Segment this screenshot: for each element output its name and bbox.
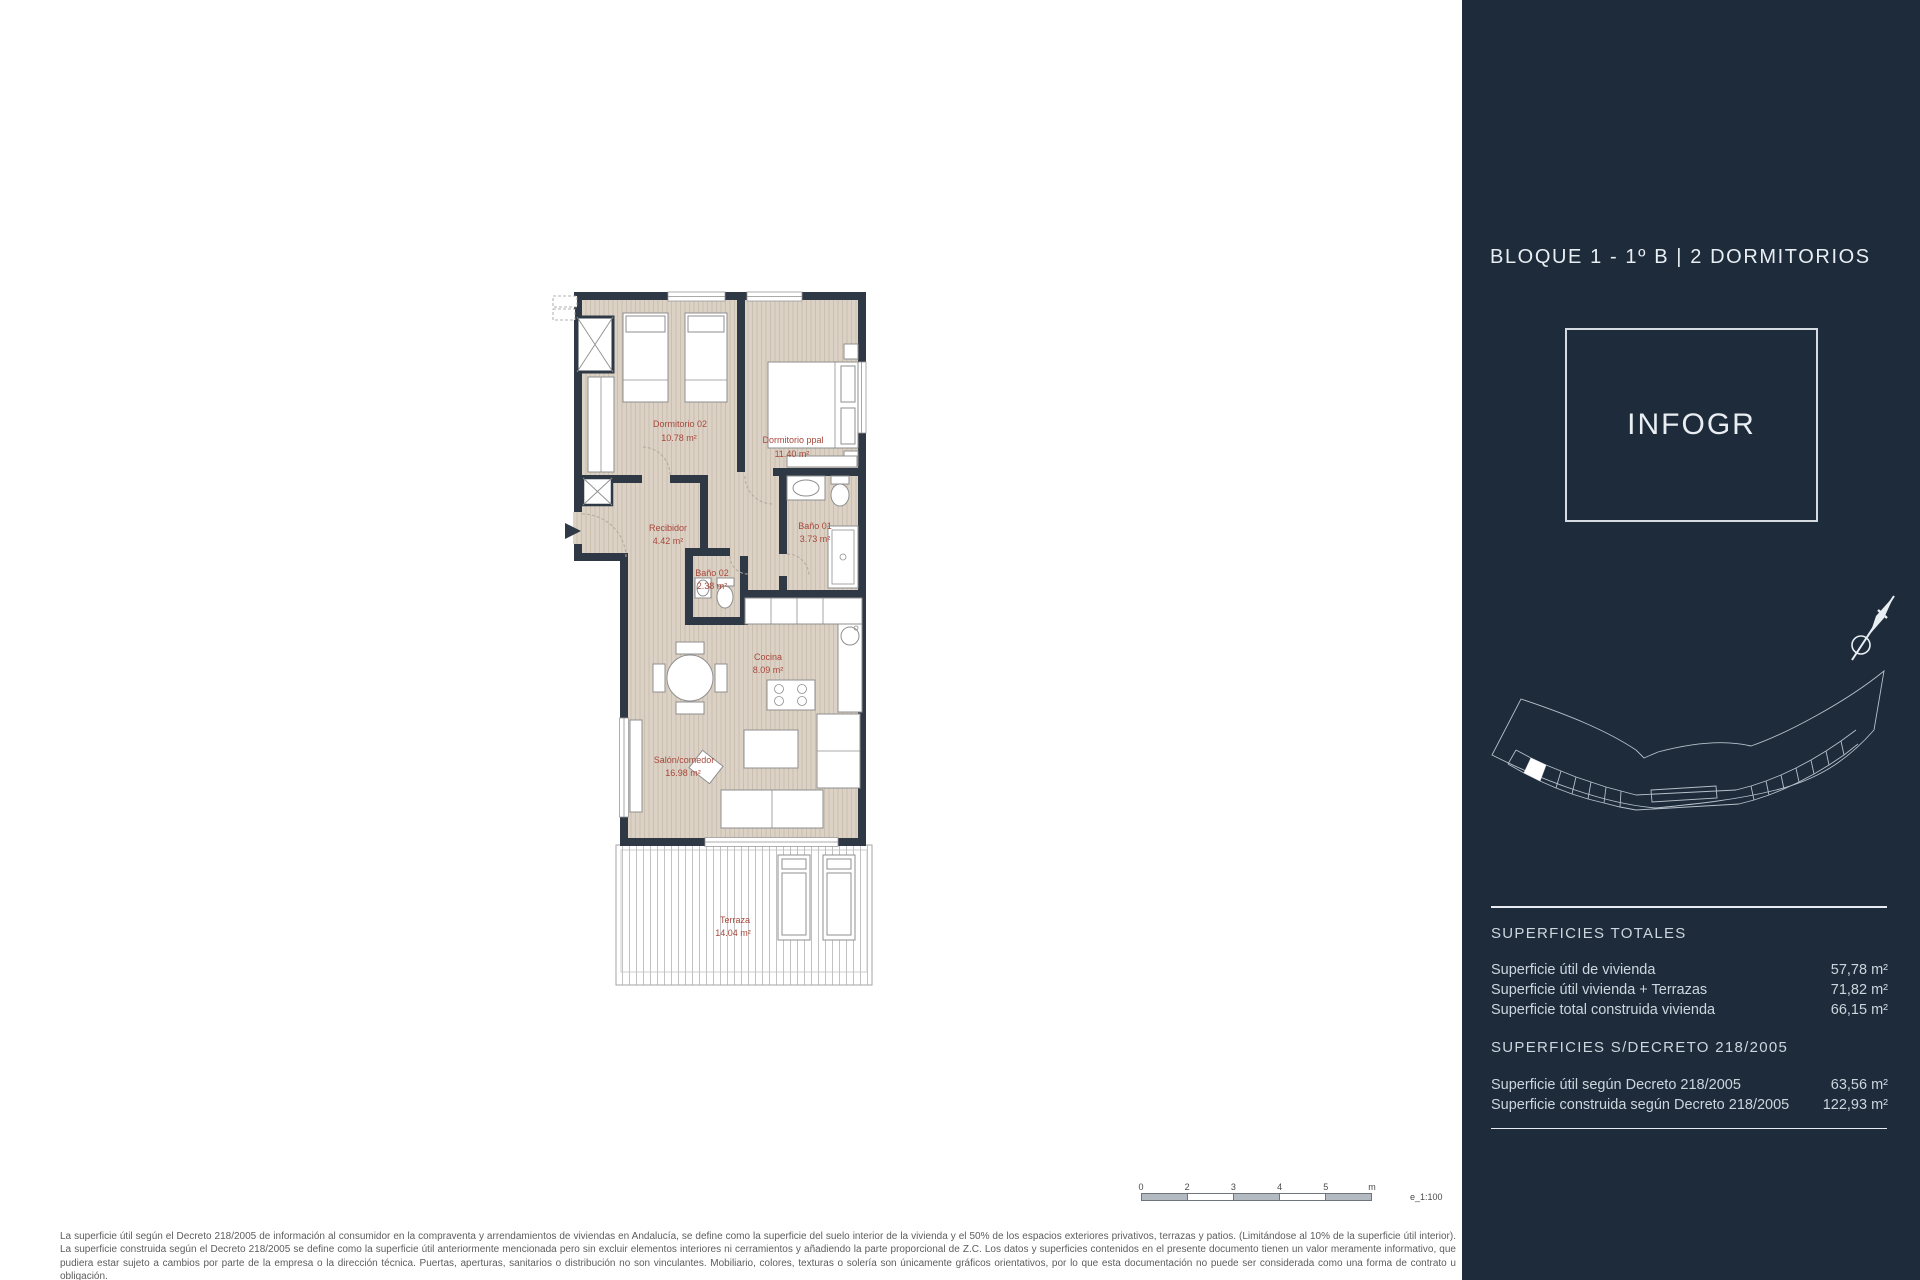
table-row: Superficie útil de vivienda 57,78 m² (1491, 962, 1888, 982)
north-compass-icon (1840, 592, 1900, 667)
room-label: Dormitorio ppal (762, 435, 823, 445)
site-plan (1486, 662, 1896, 827)
room-label: Recibidor (649, 523, 687, 533)
row-value: 57,78 m² (1831, 962, 1888, 982)
room-area: 4.42 m² (653, 536, 684, 546)
floor-plan-drawing: Dormitorio 02 10.78 m² Dormitorio ppal 1… (545, 280, 895, 995)
section-header-totals: SUPERFICIES TOTALES (1491, 925, 1687, 942)
unit-title: BLOQUE 1 - 1º B | 2 DORMITORIOS (1490, 246, 1894, 269)
row-label: Superficie útil según Decreto 218/2005 (1491, 1077, 1741, 1097)
scale-tick: 3 (1231, 1182, 1236, 1192)
row-label: Superficie total construida vivienda (1491, 1002, 1715, 1022)
row-label: Superficie construida según Decreto 218/… (1491, 1097, 1789, 1117)
scale-tick: m (1368, 1182, 1376, 1192)
room-label: Dormitorio 02 (653, 419, 707, 429)
row-value: 63,56 m² (1831, 1077, 1888, 1097)
row-value: 71,82 m² (1831, 982, 1888, 1002)
scale-tick: 4 (1277, 1182, 1282, 1192)
divider-line (1491, 906, 1887, 908)
scale-note: e_1:100 (1410, 1192, 1443, 1202)
divider-line (1491, 1128, 1887, 1129)
row-value: 122,93 m² (1823, 1097, 1888, 1117)
table-row: Superficie total construida vivienda 66,… (1491, 1002, 1888, 1022)
room-label: Baño 01 (798, 521, 832, 531)
row-label: Superficie útil de vivienda (1491, 962, 1655, 982)
scale-tick: 2 (1185, 1182, 1190, 1192)
room-area: 3.73 m² (800, 534, 831, 544)
room-label: Terraza (720, 915, 750, 925)
room-area: 14.04 m² (715, 928, 751, 938)
table-row: Superficie útil según Decreto 218/2005 6… (1491, 1077, 1888, 1097)
logo-box: INFOGR (1565, 328, 1818, 522)
scale-bar: 0 2 3 4 5 m (1141, 1182, 1372, 1206)
row-label: Superficie útil vivienda + Terrazas (1491, 982, 1707, 1002)
highlighted-unit (1524, 758, 1546, 781)
row-value: 66,15 m² (1831, 1002, 1888, 1022)
logo-text: INFOGR (1627, 408, 1756, 442)
table-row: Superficie construida según Decreto 218/… (1491, 1097, 1888, 1117)
legal-disclaimer: La superficie útil según el Decreto 218/… (60, 1230, 1456, 1280)
info-sidebar: BLOQUE 1 - 1º B | 2 DORMITORIOS INFOGR (1462, 0, 1920, 1280)
room-label: Baño 02 (695, 568, 729, 578)
section-header-decreto: SUPERFICIES S/DECRETO 218/2005 (1491, 1039, 1788, 1056)
room-area: 16.98 m² (665, 768, 701, 778)
room-area: 11.40 m² (775, 449, 810, 459)
room-area: 10.78 m² (661, 433, 697, 443)
scale-tick-labels: 0 2 3 4 5 m (1141, 1182, 1372, 1193)
scale-tick: 5 (1323, 1182, 1328, 1192)
table-row: Superficie útil vivienda + Terrazas 71,8… (1491, 982, 1888, 1002)
floor-plan: Dormitorio 02 10.78 m² Dormitorio ppal 1… (545, 280, 895, 995)
totals-table: Superficie útil de vivienda 57,78 m² Sup… (1491, 962, 1888, 1022)
decreto-table: Superficie útil según Decreto 218/2005 6… (1491, 1077, 1888, 1117)
room-label: Salón/comedor (654, 755, 715, 765)
room-area: 8.09 m² (753, 665, 784, 675)
scale-tick: 0 (1138, 1182, 1143, 1192)
room-area: 2.38 m² (697, 581, 728, 591)
room-label: Cocina (754, 652, 782, 662)
scale-bar-segments (1141, 1193, 1372, 1201)
